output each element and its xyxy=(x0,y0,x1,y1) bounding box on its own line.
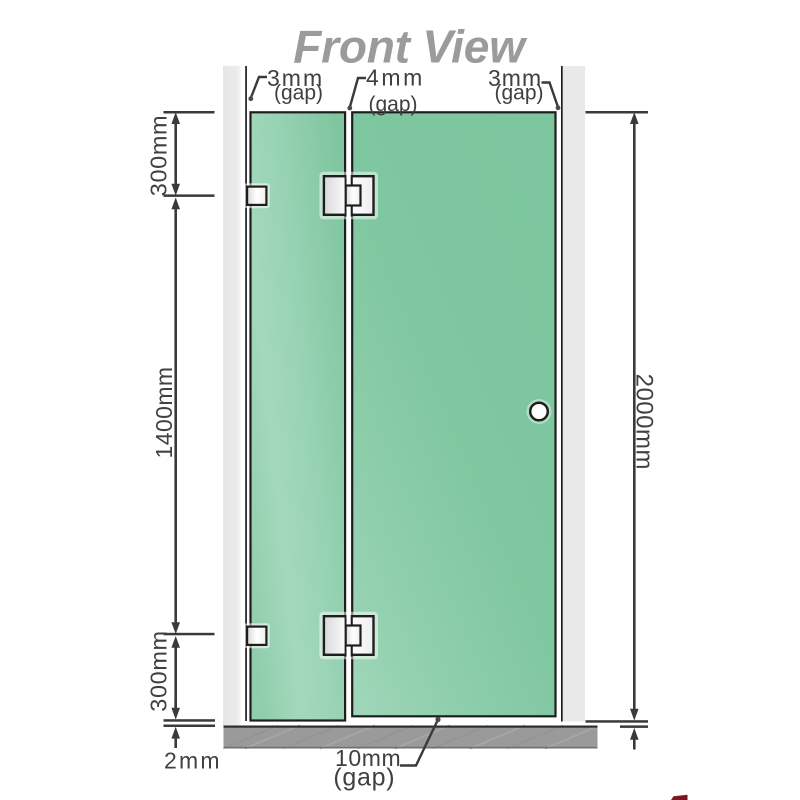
svg-text:1400mm: 1400mm xyxy=(151,367,177,459)
svg-text:(gap): (gap) xyxy=(368,93,417,116)
svg-text:4mm: 4mm xyxy=(366,65,425,91)
svg-text:2mm: 2mm xyxy=(164,748,222,774)
svg-text:(gap): (gap) xyxy=(494,82,543,105)
svg-text:300mm: 300mm xyxy=(146,630,172,711)
svg-text:(gap): (gap) xyxy=(333,764,395,792)
svg-text:2000mm: 2000mm xyxy=(631,374,658,470)
svg-text:(gap): (gap) xyxy=(274,82,323,105)
svg-text:300mm: 300mm xyxy=(146,115,172,196)
